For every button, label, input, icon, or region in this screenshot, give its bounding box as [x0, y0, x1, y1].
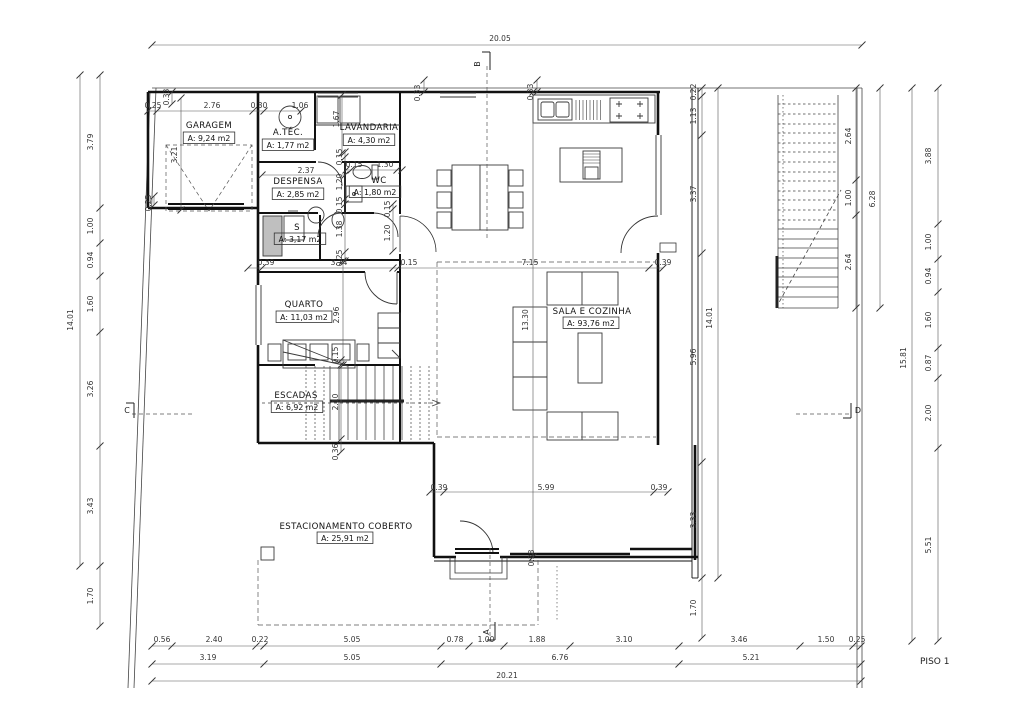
room-area-wc: A: 1,80 m2: [354, 188, 397, 197]
dimension-label: 3.26: [86, 380, 95, 397]
dimension-label: 0.25: [145, 101, 162, 110]
room-name-quarto: QUARTO: [285, 300, 324, 310]
dimension-label: 2.00: [924, 404, 933, 421]
dimension-label: 3.79: [86, 133, 95, 150]
section-marker-b: B: [473, 61, 482, 67]
column: [261, 547, 274, 560]
dimension-label: 14.01: [66, 309, 75, 331]
exterior-stairs: [776, 95, 841, 308]
dimension-label: 1.20: [335, 173, 344, 190]
dimension-label: 6.28: [868, 190, 877, 207]
dimension-label: 0.39: [655, 258, 672, 267]
dimension-label: 1.60: [86, 295, 95, 312]
dimension-label: 14.01: [705, 307, 714, 329]
room-area-lavandaria: A: 4,30 m2: [348, 136, 391, 145]
dimension-label: 0.15: [335, 196, 344, 213]
dimension-label: 1.00: [86, 217, 95, 234]
dimension-label: 0.39: [651, 483, 668, 492]
walls: [148, 88, 698, 578]
dimension-label: 0.33: [413, 84, 422, 101]
laundry-tub: [308, 207, 324, 223]
dimension-label: 2.96: [332, 306, 341, 323]
dimension-label: 1.20: [383, 224, 392, 241]
room-area-sala-e-cozinha: A: 93,76 m2: [567, 319, 615, 328]
floor-plan-svg: 20.050.562.400.225.050.781.001.883.103.4…: [0, 0, 1010, 720]
dimension-label: 0.15: [383, 200, 392, 217]
doors: [168, 162, 676, 579]
dimension-label: 0.78: [447, 635, 464, 644]
room-area-s: A: 3,17 m2: [279, 235, 322, 244]
dimension-label: 0.15: [346, 160, 363, 169]
kitchen-counter: [533, 95, 655, 123]
dimension-label: 20.05: [489, 34, 511, 43]
dimension-label: 0.87: [924, 354, 933, 371]
dimension-label: 5.99: [538, 483, 555, 492]
dimension-label: 0.94: [86, 251, 95, 268]
dimension-label: 1.06: [292, 101, 309, 110]
dimension-label: 3.19: [200, 653, 217, 662]
room-area-estacionamento-coberto: A: 25,91 m2: [321, 534, 369, 543]
generated-labels: 20.050.562.400.225.050.781.001.883.103.4…: [66, 34, 933, 680]
dimension-label: 6.76: [552, 653, 569, 662]
room-name-lavandaria: LAVANDARIA: [340, 123, 399, 133]
dimension-label: 2.37: [298, 166, 315, 175]
room-name-sala-e-cozinha: SALA E COZINHA: [553, 307, 632, 317]
dimension-label: 0.33: [526, 83, 535, 100]
dimension-label: 1.00: [924, 233, 933, 250]
room-name-estacionamento-coberto: ESTACIONAMENTO COBERTO: [279, 522, 412, 532]
dimension-label: 2.10: [331, 393, 340, 410]
room-name-wc: WC: [371, 176, 386, 186]
dimension-label: 20.21: [496, 671, 518, 680]
dimension-label: 0.36: [331, 443, 340, 460]
room-area-quarto: A: 11,03 m2: [280, 313, 328, 322]
dimension-label: 5.21: [743, 653, 760, 662]
dimension-label: 7.15: [522, 258, 539, 267]
dimension-label: 1.38: [335, 220, 344, 237]
dimension-label: 3.37: [689, 185, 698, 202]
dimension-label: 1.00: [844, 189, 853, 206]
dimension-label: 0.30: [251, 101, 268, 110]
dimension-label: 0.15: [401, 258, 418, 267]
sofa-group: [513, 272, 618, 440]
room-name-escadas: ESCADAS: [274, 391, 317, 401]
section-marker-c: C: [124, 406, 130, 415]
dimension-label: 0.22: [252, 635, 269, 644]
dimension-label: 5.05: [344, 635, 361, 644]
furniture: [261, 95, 692, 560]
dimension-label: 5.51: [924, 536, 933, 553]
dimension-label: 1.88: [529, 635, 546, 644]
dimension-label: 0.39: [258, 258, 275, 267]
room-name-s: S: [294, 223, 300, 233]
dimension-label: 3.88: [924, 147, 933, 164]
dimension-label: 1.70: [86, 587, 95, 604]
dimension-label: 1.00: [478, 635, 495, 644]
storage-closets: [263, 211, 304, 256]
dimension-label: 0.33: [162, 88, 171, 105]
room-area-escadas: A: 6,92 m2: [276, 403, 319, 412]
dimension-label: 2.64: [844, 253, 853, 270]
dimension-label: 5.05: [344, 653, 361, 662]
dimension-label: 3.74: [331, 258, 348, 267]
section-marker-d: D: [855, 406, 861, 415]
floor-plan-page: 20.050.562.400.225.050.781.001.883.103.4…: [0, 0, 1010, 720]
dimension-label: 0.15: [331, 346, 340, 363]
dimension-label: 2.76: [204, 101, 221, 110]
kitchen-island: [560, 148, 622, 182]
section-marker-a: A: [482, 629, 491, 635]
dimension-label: 0.22: [689, 83, 698, 100]
dimension-label: 3.21: [170, 146, 179, 163]
room-area-despensa: A: 2,85 m2: [277, 190, 320, 199]
dimension-label: 0.94: [924, 267, 933, 284]
dimension-label: 3.46: [731, 635, 748, 644]
room-name-a-t-c: A.TÉC.: [273, 126, 303, 138]
room-name-garagem: GARAGEM: [186, 121, 232, 131]
dimension-label: 2.64: [844, 127, 853, 144]
dimension-label: 1.70: [689, 599, 698, 616]
dimension-label: 0.25: [144, 194, 153, 211]
dimension-label: 1.13: [689, 107, 698, 124]
dimension-label: 5.96: [689, 348, 698, 365]
room-area-a-t-c: A: 1,77 m2: [267, 141, 310, 150]
room-area-garagem: A: 9,24 m2: [188, 134, 231, 143]
dimension-label: 0.38: [527, 549, 536, 566]
site-boundary: [128, 88, 862, 688]
dimension-label: 1.30: [377, 160, 394, 169]
laundry-machines: [316, 96, 400, 125]
sill: [510, 549, 692, 554]
dimension-label: 1.60: [924, 311, 933, 328]
floor-label: PISO 1: [920, 657, 949, 667]
dimension-label: 0.56: [154, 635, 171, 644]
room-name-despensa: DESPENSA: [273, 177, 322, 187]
dashed-lines: [132, 66, 850, 642]
dimension-label: 13.30: [521, 309, 530, 331]
dimension-label: 3.33: [689, 511, 698, 528]
dining-set: [437, 165, 523, 230]
dimension-label: 0.25: [849, 635, 866, 644]
dimension-label: 0.39: [431, 483, 448, 492]
dimension-label: 3.10: [616, 635, 633, 644]
dimension-label: 15.81: [899, 347, 908, 369]
dimension-label: 1.50: [818, 635, 835, 644]
dimension-label: 2.40: [206, 635, 223, 644]
dimension-label: 3.43: [86, 497, 95, 514]
dimension-label: 0.15: [335, 148, 344, 165]
